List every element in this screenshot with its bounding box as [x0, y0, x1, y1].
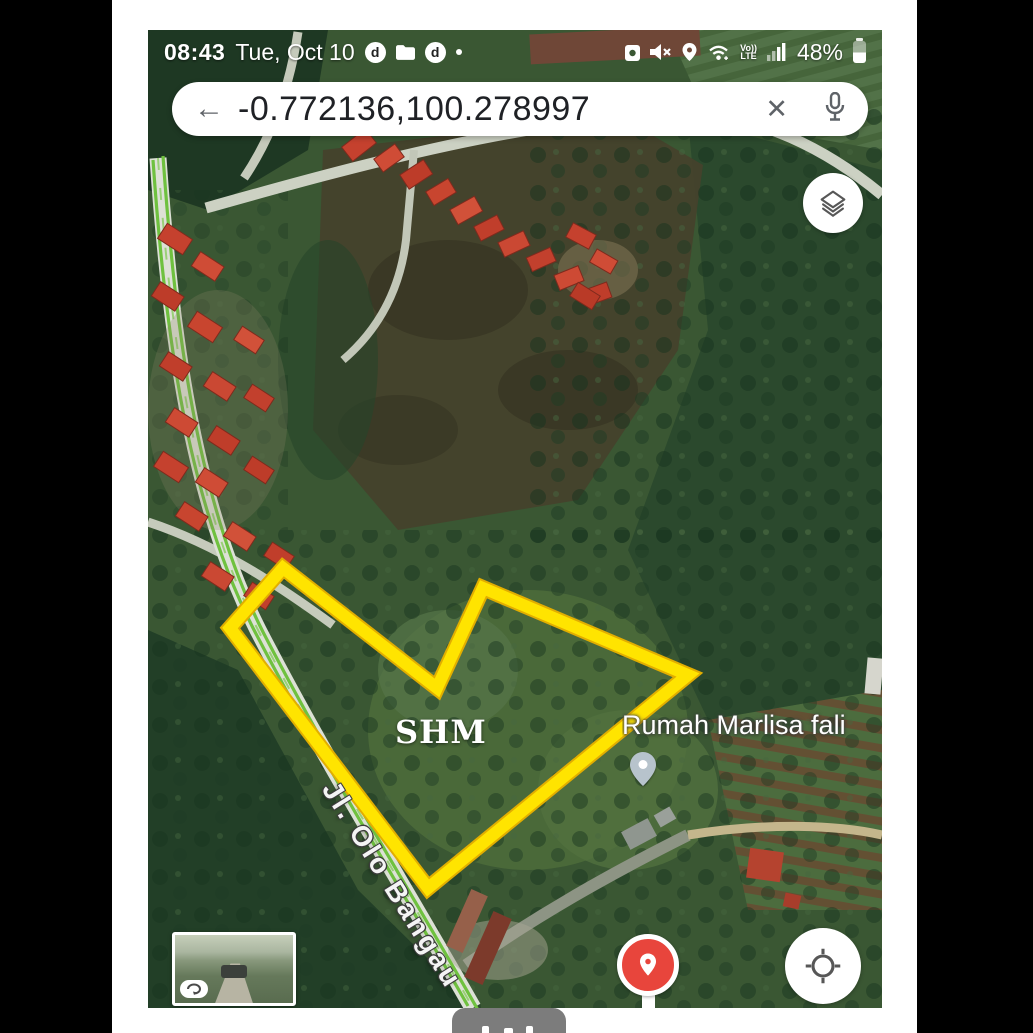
- pin-glyph-icon: [637, 952, 659, 978]
- secondary-place-pin-icon[interactable]: [630, 752, 656, 786]
- plot-boundary-overlay: [148, 30, 882, 1008]
- search-bar[interactable]: ← -0.772136,100.278997 ✕: [172, 82, 868, 136]
- status-bar: 08:43 Tue, Oct 10 d d Vo)): [148, 30, 882, 74]
- partial-glyph: [482, 1026, 489, 1033]
- clear-icon[interactable]: ✕: [765, 94, 788, 125]
- street-view-car: [221, 965, 247, 978]
- search-input[interactable]: -0.772136,100.278997: [238, 90, 751, 129]
- wifi-icon: [707, 43, 730, 61]
- volte-indicator: Vo)) LTE: [740, 44, 757, 60]
- clock: 08:43: [164, 39, 225, 66]
- my-location-icon: [803, 946, 843, 986]
- my-location-button[interactable]: [785, 928, 861, 1004]
- back-icon[interactable]: ←: [194, 94, 224, 124]
- date: Tue, Oct 10: [235, 39, 354, 66]
- marker-disc: [617, 934, 679, 996]
- map-viewport[interactable]: SHM Rumah Marlisa fali Jl. Olo Bangau 08…: [148, 30, 882, 1008]
- street-view-thumbnail[interactable]: [172, 932, 296, 1006]
- security-icon: [625, 43, 640, 61]
- street-view-pegman-icon: [180, 980, 208, 998]
- place-label[interactable]: Rumah Marlisa fali: [622, 710, 882, 741]
- letterbox-left: [0, 0, 112, 1033]
- layers-icon: [816, 186, 850, 220]
- partial-glyph: [526, 1026, 533, 1033]
- location-icon: [682, 43, 697, 61]
- signal-icon: [767, 43, 787, 61]
- layers-button[interactable]: [803, 173, 863, 233]
- battery-percent: 48%: [797, 39, 843, 66]
- battery-icon: [853, 41, 866, 63]
- plot-label: SHM: [395, 713, 487, 751]
- letterbox-right: [917, 0, 1033, 1033]
- folder-icon: [396, 44, 415, 60]
- partial-glyph: [504, 1028, 513, 1033]
- mute-icon: [650, 43, 672, 61]
- mic-icon[interactable]: [824, 92, 846, 127]
- more-notifications-dot: [456, 49, 462, 55]
- app-notification-icon: d: [425, 42, 446, 63]
- app-notification-icon: d: [365, 42, 386, 63]
- red-place-marker[interactable]: [617, 934, 679, 1008]
- bottom-overlay-partial[interactable]: [452, 1008, 566, 1033]
